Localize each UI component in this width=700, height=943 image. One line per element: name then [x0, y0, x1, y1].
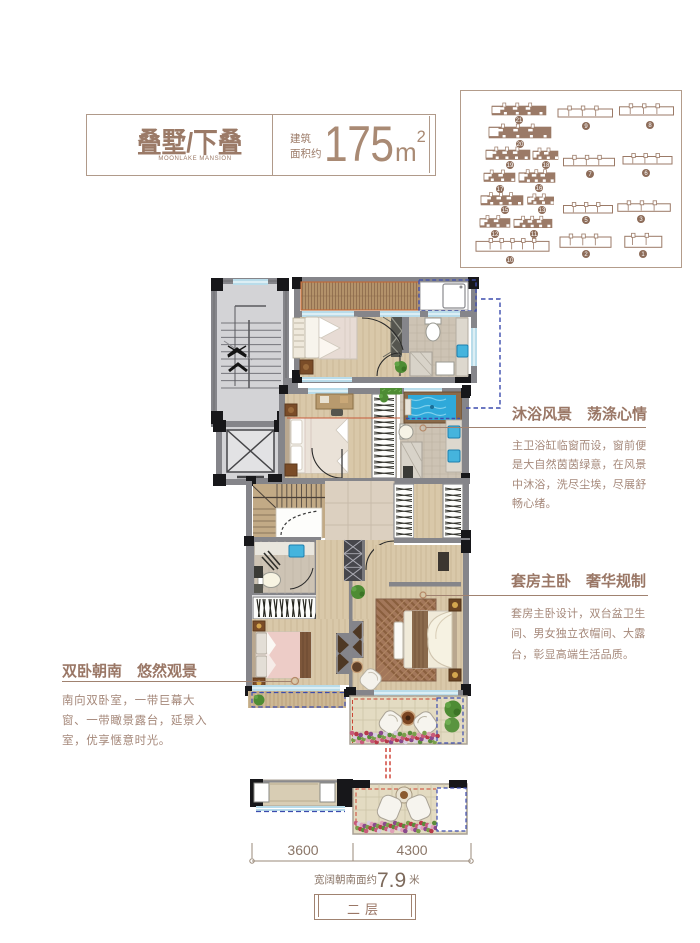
svg-text:16: 16: [536, 186, 543, 192]
svg-text:13: 13: [539, 208, 546, 214]
svg-text:15: 15: [502, 208, 509, 214]
svg-text:19: 19: [507, 163, 514, 169]
svg-text:17: 17: [497, 187, 504, 193]
svg-text:21: 21: [516, 118, 523, 124]
svg-text:11: 11: [531, 232, 538, 238]
svg-text:18: 18: [543, 163, 550, 169]
svg-text:10: 10: [507, 258, 514, 264]
svg-text:12: 12: [492, 232, 499, 238]
